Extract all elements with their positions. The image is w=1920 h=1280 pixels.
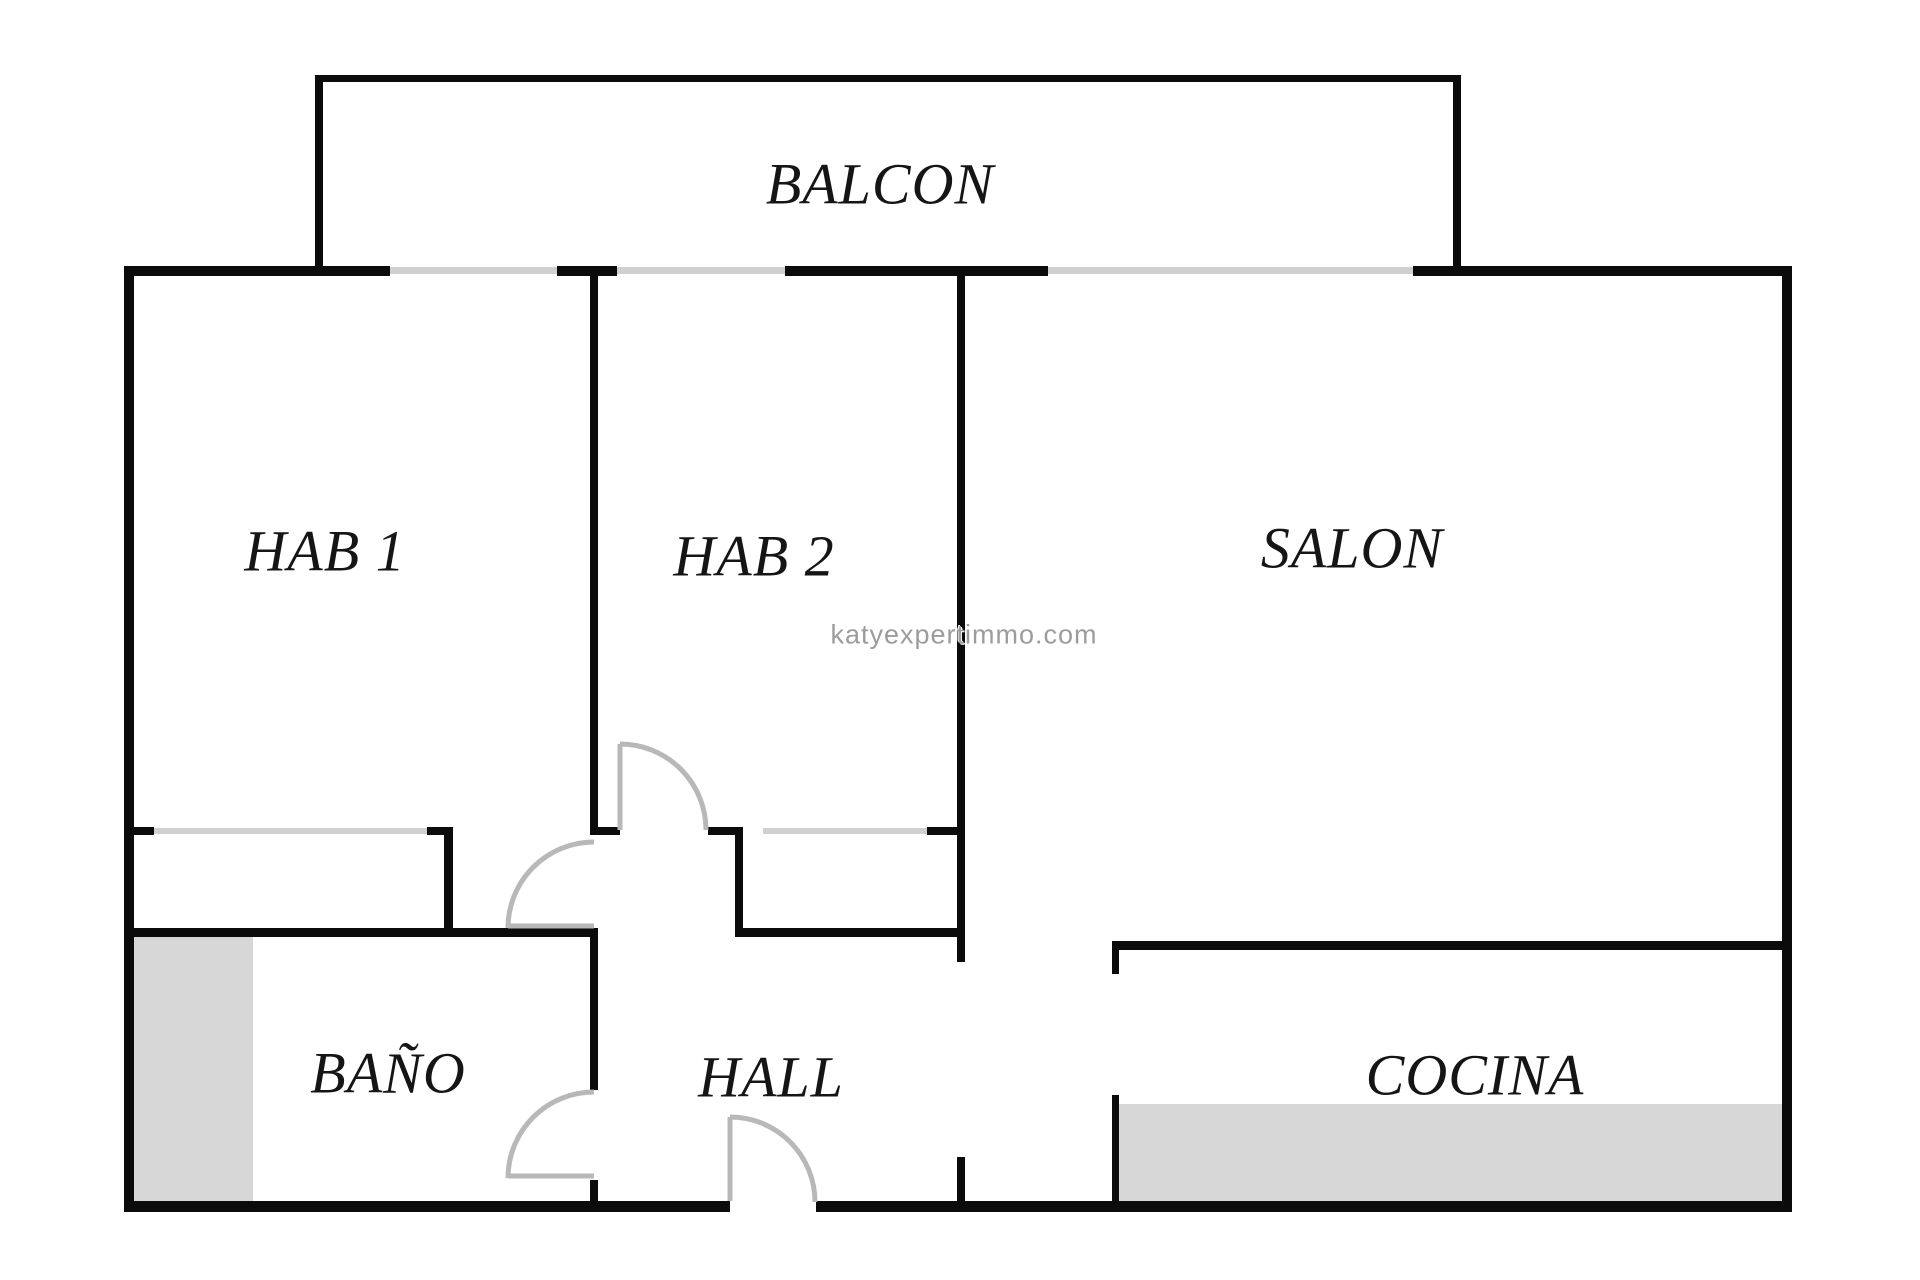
outer-wall-bottom-seg2 <box>816 1201 1792 1212</box>
bano-top-wall <box>124 928 598 937</box>
hall-closet-side-wall <box>735 827 743 937</box>
hab1-closet-side-wall <box>444 827 453 937</box>
hall-label: HALL <box>698 1044 844 1111</box>
watermark: katyexpertimmo.com <box>830 620 1097 651</box>
bano-label: BAÑO <box>310 1040 465 1107</box>
salon-label: SALON <box>1261 515 1443 582</box>
hab2-window <box>617 267 785 274</box>
hall-closet-cap-right <box>927 827 965 835</box>
hall-salon-stub <box>957 1157 965 1201</box>
balcon-wall-left <box>315 75 323 273</box>
bano-door-swing <box>508 1092 594 1178</box>
hall-closet-front <box>763 828 927 834</box>
bano-door-stub <box>590 1180 598 1201</box>
hab2-label: HAB 2 <box>673 523 834 590</box>
hab1-window <box>390 267 557 274</box>
cocina-left-wall <box>1112 1095 1119 1201</box>
cocina-label: COCINA <box>1366 1042 1585 1109</box>
hab1-label: HAB 1 <box>244 518 405 585</box>
entry-door-swing <box>730 1117 815 1202</box>
cocina-top-wall <box>1112 941 1792 950</box>
bano-shower-area <box>134 937 253 1201</box>
outer-wall-left <box>124 266 134 1212</box>
outer-wall-top-seg4 <box>1413 266 1792 276</box>
bano-right-wall <box>590 928 598 1090</box>
balcon-wall-right <box>1453 75 1461 273</box>
balcon-label: BALCON <box>766 151 994 218</box>
outer-wall-right <box>1782 266 1792 1212</box>
balcon-wall-top <box>315 75 1461 82</box>
outer-wall-top-seg3 <box>785 266 1048 276</box>
hab1-door-swing <box>508 842 594 928</box>
floorplan-canvas: BALCON HAB 1 HAB 2 SALON BAÑO HALL COCIN… <box>0 0 1920 1280</box>
wall-hab1-hab2 <box>590 266 598 832</box>
hab1-closet-front <box>154 828 427 834</box>
outer-wall-top-seg2 <box>557 266 617 276</box>
cocina-counter-area <box>1119 1104 1782 1201</box>
hab2-bottom-stub-left <box>590 827 620 835</box>
hab2-door-swing <box>620 744 706 830</box>
salon-window <box>1048 267 1413 274</box>
outer-wall-bottom-seg1 <box>124 1201 730 1212</box>
hab1-closet-cap-left <box>124 827 154 835</box>
outer-wall-top-seg1 <box>124 266 390 276</box>
hall-closet-bottom-wall <box>735 928 965 937</box>
wall-hab2-salon <box>957 266 965 962</box>
